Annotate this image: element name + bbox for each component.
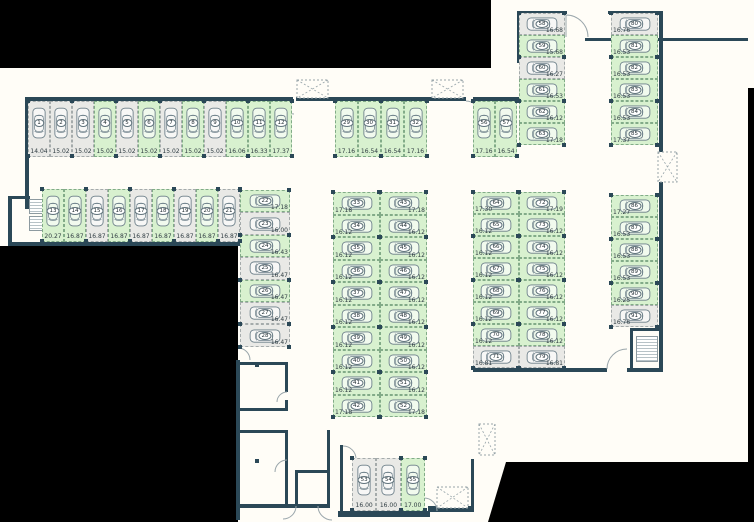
pillar [471,154,475,158]
space-number-badge: 2 [56,119,66,127]
pillar [128,187,132,191]
space-dimension-label: 16.12 [335,252,352,259]
parking-space-37[interactable]: 3716.12 [333,282,380,305]
pillar [517,11,521,15]
pillar [655,11,659,15]
pillar [333,99,337,103]
parking-space-24[interactable]: 2416.43 [240,235,290,257]
parking-space-22[interactable]: 2217.18 [240,190,290,212]
parking-space-11[interactable]: 1116.33 [248,101,270,157]
space-dimension-label: 15.02 [183,148,203,155]
pillar [424,280,428,284]
parking-space-19[interactable]: 1916.87 [174,189,196,242]
space-number-badge: 23 [259,220,272,228]
parking-space-38[interactable]: 3816.12 [333,305,380,328]
parking-space-76[interactable]: 7616.12 [519,280,565,302]
space-number-badge: 18 [157,207,170,215]
space-number-badge: 55 [406,476,419,484]
pillar [424,415,428,419]
pillar [471,278,475,282]
space-dimension-label: 16.00 [271,227,288,234]
pillar [128,239,132,243]
parking-space-35[interactable]: 3516.12 [333,237,380,260]
parking-space-36[interactable]: 3616.12 [333,260,380,283]
space-dimension-label: 15.02 [117,148,137,155]
pillar [84,239,88,243]
pillar [287,278,291,282]
space-number-badge: 19 [179,207,192,215]
space-dimension-label: 20.27 [43,233,63,240]
space-number-badge: 57 [500,119,513,127]
parking-space-44[interactable]: 4416.12 [380,215,427,238]
space-dimension-label: 17.37 [271,148,291,155]
parking-space-86[interactable]: 8617.27 [611,195,658,217]
parking-space-50[interactable]: 5016.12 [380,350,427,373]
pillar [609,143,613,147]
space-dimension-label: 16.12 [335,364,352,371]
parking-space-30[interactable]: 3016.54 [358,101,381,157]
pillar [378,370,382,374]
pillar [290,99,294,103]
pillar [333,154,337,158]
parking-space-60[interactable]: 6016.27 [519,57,565,79]
space-dimension-label: 16.12 [408,342,425,349]
space-dimension-label: 16.47 [271,316,288,323]
pillar [399,508,403,512]
space-dimension-label: 17.19 [546,206,563,213]
parking-space-31[interactable]: 3116.54 [381,101,404,157]
space-number-badge: 7 [166,119,176,127]
pillar [287,345,291,349]
parking-space-52[interactable]: 5217.18 [380,395,427,418]
pillar [238,278,242,282]
pillar [423,456,427,460]
pillar [562,11,566,15]
parking-space-63[interactable]: 6317.18 [519,123,565,145]
parking-space-82[interactable]: 8216.53 [611,57,658,79]
space-number-badge: 20 [201,207,214,215]
parking-space-14[interactable]: 1416.87 [64,189,86,242]
space-dimension-label: 16.12 [475,250,492,257]
space-dimension-label: 16.33 [249,148,269,155]
parking-space-20[interactable]: 2016.87 [196,189,218,242]
parking-space-1[interactable]: 114.04 [28,101,50,157]
pillar [423,508,427,512]
space-dimension-label: 16.12 [408,297,425,304]
pillar [287,322,291,326]
parking-space-70[interactable]: 7016.12 [473,324,519,346]
parking-space-71[interactable]: 7116.81 [473,346,519,368]
space-number-badge: 30 [363,119,376,127]
space-dimension-label: 15.68 [546,49,563,56]
pillar [172,239,176,243]
space-number-badge: 11 [253,119,266,127]
space-dimension-label: 16.54 [496,148,516,155]
parking-space-57[interactable]: 5716.54 [495,101,517,157]
space-dimension-label: 15.02 [161,148,181,155]
pillar [655,143,659,147]
parking-space-41[interactable]: 4116.12 [333,372,380,395]
pillar [562,366,566,370]
space-number-badge: 9 [210,119,220,127]
parking-space-77[interactable]: 7716.12 [519,302,565,324]
parking-space-34[interactable]: 3416.12 [333,215,380,238]
space-number-badge: 16 [113,207,126,215]
parking-space-40[interactable]: 4016.12 [333,350,380,373]
pillar [331,280,335,284]
stairs-icon [29,216,43,231]
space-dimension-label: 17.18 [546,137,563,144]
parking-space-2[interactable]: 215.02 [50,101,72,157]
parking-space-18[interactable]: 1816.87 [152,189,174,242]
space-dimension-label: 16.43 [271,249,288,256]
space-dimension-label: 16.00 [377,502,399,509]
parking-space-78[interactable]: 7816.12 [519,324,565,346]
pillar [255,363,259,367]
pillar [562,322,566,326]
pillar [517,190,521,194]
parking-space-84[interactable]: 8416.53 [611,101,658,123]
pillar [517,99,521,103]
space-dimension-label: 16.12 [408,274,425,281]
space-dimension-label: 16.25 [613,297,630,304]
parking-space-33[interactable]: 3317.18 [333,192,380,215]
pillar [255,459,259,463]
space-number-badge: 26 [259,287,272,295]
space-number-badge: 53 [358,476,371,484]
pillar [517,143,521,147]
space-dimension-label: 16.53 [546,93,563,100]
space-dimension-label: 16.54 [359,148,380,155]
pillar [655,237,659,241]
space-number-badge: 31 [386,119,399,127]
parking-space-61[interactable]: 6116.53 [519,79,565,101]
space-dimension-label: 16.53 [613,71,630,78]
space-dimension-label: 17.16 [474,148,494,155]
pillar [238,322,242,326]
parking-space-23[interactable]: 2316.00 [240,212,290,234]
pillar [378,325,382,329]
parking-space-12[interactable]: 1217.37 [270,101,292,157]
space-number-badge: 56 [478,119,491,127]
pillar [517,322,521,326]
pillar [331,235,335,239]
pillar [84,187,88,191]
pillar [562,55,566,59]
space-number-badge: 28 [259,332,272,340]
space-dimension-label: 17.16 [405,148,426,155]
pillar [331,370,335,374]
space-dimension-label: 16.87 [109,233,129,240]
parking-space-45[interactable]: 4516.12 [380,237,427,260]
space-number-badge: 54 [382,476,395,484]
space-dimension-label: 16.68 [546,27,563,34]
space-dimension-label: 16.87 [175,233,195,240]
space-dimension-label: 16.12 [408,319,425,326]
space-dimension-label: 17.30 [475,206,492,213]
pillar [287,233,291,237]
space-dimension-label: 16.53 [613,231,630,238]
space-number-badge: 12 [275,119,288,127]
space-dimension-label: 16.87 [153,233,173,240]
pillar [216,187,220,191]
parking-space-55[interactable]: 5517.00 [401,458,425,511]
parking-space-43[interactable]: 4317.18 [380,192,427,215]
parking-space-46[interactable]: 4616.12 [380,260,427,283]
pillar [287,188,291,192]
pillar [471,234,475,238]
space-dimension-label: 16.87 [197,233,217,240]
pillar [378,280,382,284]
space-dimension-label: 16.12 [408,229,425,236]
pillar [238,188,242,192]
parking-space-21[interactable]: 2116.87 [218,189,240,242]
parking-space-26[interactable]: 2616.47 [240,280,290,302]
parking-space-74[interactable]: 7416.12 [519,236,565,258]
pillar [350,456,354,460]
pillar [331,415,335,419]
pillar [379,99,383,103]
pillar [40,239,44,243]
space-dimension-label: 16.12 [546,228,563,235]
space-dimension-label: 16.47 [271,272,288,279]
parking-space-39[interactable]: 3916.12 [333,327,380,350]
space-dimension-label: 16.53 [613,93,630,100]
parking-space-58[interactable]: 5816.68 [519,13,565,35]
parking-space-15[interactable]: 1516.87 [86,189,108,242]
space-dimension-label: 17.18 [335,409,352,416]
space-dimension-label: 15.02 [73,148,93,155]
parking-space-85[interactable]: 8517.37 [611,123,658,145]
space-number-badge: 5 [122,119,132,127]
parking-space-25[interactable]: 2516.47 [240,257,290,279]
pillar [216,239,220,243]
pillar [26,99,30,103]
parking-space-49[interactable]: 4916.12 [380,327,427,350]
pillar [399,456,403,460]
pillar [172,187,176,191]
space-dimension-label: 14.04 [29,148,49,155]
parking-space-66[interactable]: 6616.12 [473,236,519,258]
pillar [331,325,335,329]
space-dimension-label: 16.12 [475,294,492,301]
pillar [609,55,613,59]
space-number-badge: 1 [34,119,44,127]
pillar [158,99,162,103]
parking-space-80[interactable]: 8016.76 [611,13,658,35]
pillar [70,154,74,158]
space-dimension-label: 16.12 [475,228,492,235]
parking-space-27[interactable]: 2716.47 [240,302,290,324]
space-number-badge: 3 [78,119,88,127]
pillar [158,154,162,158]
parking-space-54[interactable]: 5416.00 [376,458,400,511]
parking-space-65[interactable]: 6516.12 [473,214,519,236]
pillar [246,99,250,103]
pillar [114,99,118,103]
parking-space-51[interactable]: 5116.12 [380,372,427,395]
space-dimension-label: 17.18 [271,204,288,211]
space-number-badge: 15 [91,207,104,215]
parking-space-67[interactable]: 6716.12 [473,258,519,280]
pillar [655,325,659,329]
space-dimension-label: 16.87 [219,233,239,240]
parking-space-91[interactable]: 9116.76 [611,305,658,327]
space-dimension-label: 17.18 [408,207,425,214]
pillar [246,154,250,158]
parking-space-69[interactable]: 6916.12 [473,302,519,324]
parking-space-10[interactable]: 1016.06 [226,101,248,157]
space-dimension-label: 16.87 [87,233,107,240]
space-dimension-label: 16.12 [335,297,352,304]
pillar [609,193,613,197]
pillar [517,278,521,282]
pillar [425,99,429,103]
space-dimension-label: 15.02 [51,148,71,155]
pillar [202,99,206,103]
space-number-badge: 25 [259,264,272,272]
space-number-badge: 13 [47,207,60,215]
space-dimension-label: 15.02 [139,148,159,155]
pillar [424,190,428,194]
parking-space-29[interactable]: 2917.16 [335,101,358,157]
parking-space-42[interactable]: 4217.18 [333,395,380,418]
space-number-badge: 32 [409,119,422,127]
parking-space-16[interactable]: 1616.87 [108,189,130,242]
space-number-badge: 8 [188,119,198,127]
space-dimension-label: 16.12 [408,364,425,371]
pillar [350,508,354,512]
space-dimension-label: 17.37 [613,137,630,144]
parking-space-47[interactable]: 4716.12 [380,282,427,305]
space-dimension-label: 16.12 [335,229,352,236]
parking-space-83[interactable]: 8316.53 [611,79,658,101]
parking-space-48[interactable]: 4816.12 [380,305,427,328]
parking-space-32[interactable]: 3217.16 [404,101,427,157]
pillar [378,190,382,194]
parking-space-64[interactable]: 6417.30 [473,192,519,214]
pillar [562,99,566,103]
pillar [424,325,428,329]
space-dimension-label: 16.53 [613,253,630,260]
space-number-badge: 17 [135,207,148,215]
space-dimension-label: 16.12 [335,387,352,394]
space-dimension-label: 16.12 [546,272,563,279]
space-number-badge: 4 [100,119,110,127]
parking-space-8[interactable]: 815.02 [182,101,204,157]
space-dimension-label: 16.00 [353,502,375,509]
parking-space-56[interactable]: 5617.16 [473,101,495,157]
space-number-badge: 27 [259,309,272,317]
pillar [331,190,335,194]
parking-space-7[interactable]: 715.02 [160,101,182,157]
parking-space-87[interactable]: 8716.53 [611,217,658,239]
parking-space-6[interactable]: 615.02 [138,101,160,157]
stairs-icon [29,199,43,214]
space-dimension-label: 17.16 [336,148,357,155]
space-dimension-label: 16.81 [546,360,563,367]
parking-space-5[interactable]: 515.02 [116,101,138,157]
pillar [609,237,613,241]
parking-space-3[interactable]: 315.02 [72,101,94,157]
pillar [238,239,242,243]
parking-space-72[interactable]: 7217.19 [519,192,565,214]
pillar [562,278,566,282]
parking-space-4[interactable]: 415.02 [94,101,116,157]
pillar [655,99,659,103]
parking-space-62[interactable]: 6216.12 [519,101,565,123]
parking-space-79[interactable]: 7916.81 [519,346,565,368]
pillar [562,190,566,194]
parking-space-73[interactable]: 7316.12 [519,214,565,236]
space-dimension-label: 16.12 [475,272,492,279]
parking-space-89[interactable]: 8916.53 [611,261,658,283]
pillar [609,325,613,329]
pillar [238,233,242,237]
space-dimension-label: 16.47 [271,294,288,301]
stairs-icon [636,336,658,362]
parking-space-90[interactable]: 9016.25 [611,283,658,305]
space-dimension-label: 16.12 [335,319,352,326]
pillar [562,234,566,238]
space-number-badge: 10 [231,119,244,127]
pillar [379,154,383,158]
pillar [424,370,428,374]
parking-space-9[interactable]: 915.02 [204,101,226,157]
pillar [609,11,613,15]
space-number-badge: 14 [69,207,82,215]
parking-space-88[interactable]: 8816.53 [611,239,658,261]
pillar [424,235,428,239]
space-number-badge: 21 [223,207,236,215]
parking-space-81[interactable]: 8116.53 [611,35,658,57]
parking-space-17[interactable]: 1716.87 [130,189,152,242]
pillar [655,55,659,59]
space-dimension-label: 16.12 [546,316,563,323]
space-dimension-label: 16.12 [408,387,425,394]
space-number-badge: 29 [340,119,353,127]
space-dimension-label: 16.53 [613,49,630,56]
space-dimension-label: 16.12 [408,252,425,259]
space-dimension-label: 16.53 [613,115,630,122]
pillar [202,154,206,158]
space-dimension-label: 15.02 [205,148,225,155]
parking-space-59[interactable]: 5915.68 [519,35,565,57]
pillar [517,234,521,238]
parking-space-53[interactable]: 5316.00 [352,458,376,511]
pillar [471,190,475,194]
parking-space-68[interactable]: 6816.12 [473,280,519,302]
space-dimension-label: 16.76 [613,27,630,34]
space-number-badge: 6 [144,119,154,127]
parking-space-28[interactable]: 2816.47 [240,324,290,346]
parking-space-13[interactable]: 1320.27 [42,189,64,242]
pillar [655,193,659,197]
space-dimension-label: 17.00 [402,502,424,509]
space-dimension-label: 16.76 [613,319,630,326]
space-dimension-label: 16.87 [131,233,151,240]
parking-floor-plan: 114.04215.02315.02415.02515.02615.02715.… [0,0,754,522]
space-dimension-label: 16.12 [475,316,492,323]
space-number-badge: 22 [259,197,272,205]
parking-space-75[interactable]: 7516.12 [519,258,565,280]
space-dimension-label: 17.18 [335,207,352,214]
space-dimension-label: 17.27 [613,209,630,216]
pillar [290,154,294,158]
space-dimension-label: 16.06 [227,148,247,155]
space-dimension-label: 15.02 [95,148,115,155]
space-number-badge: 24 [259,242,272,250]
